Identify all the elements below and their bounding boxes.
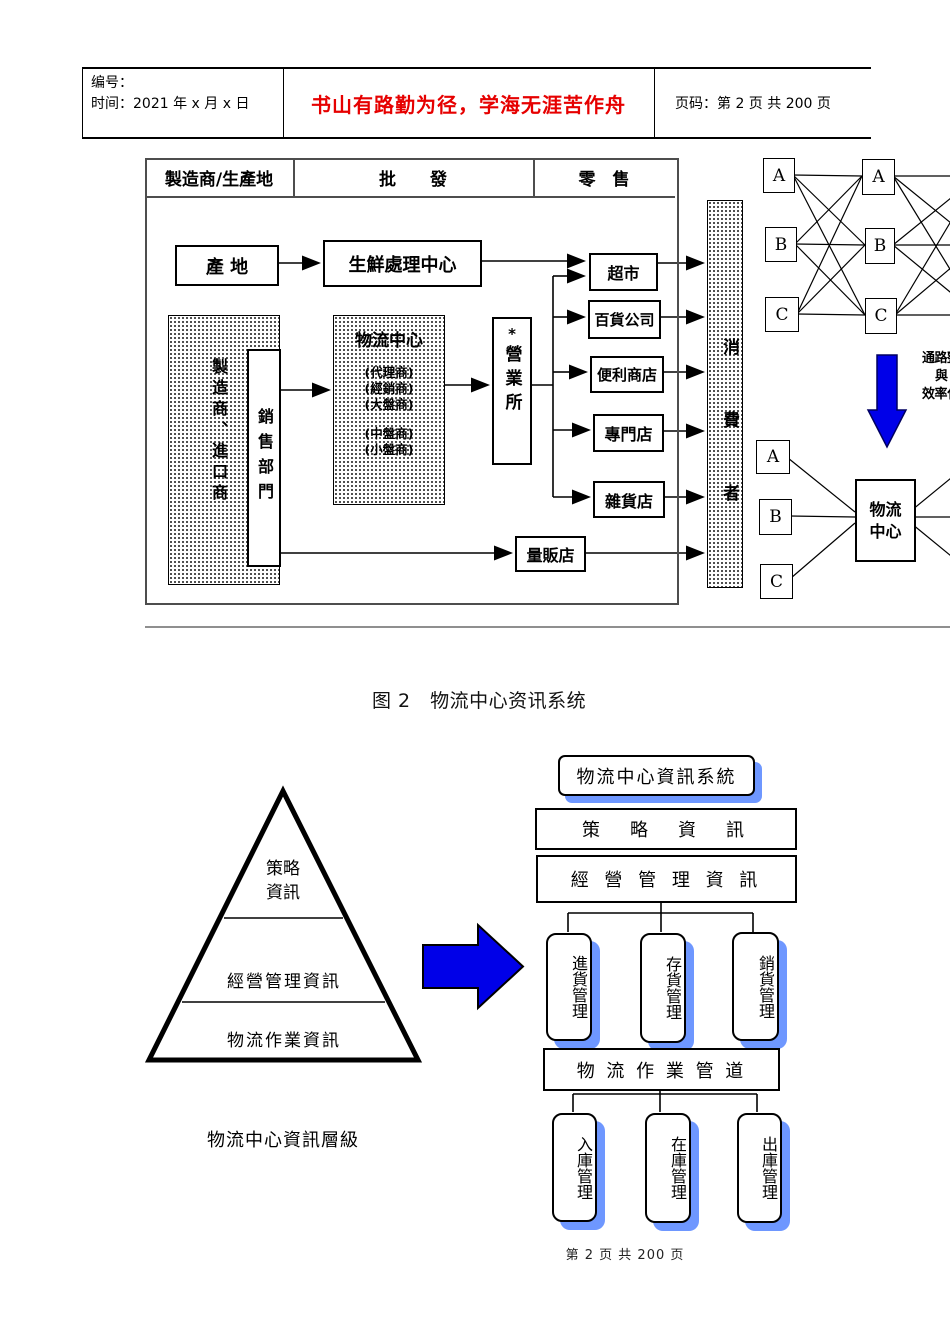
convenience-store-box: 便利商店 xyxy=(590,356,664,393)
node-c-right: C xyxy=(865,298,897,334)
pyramid-shape xyxy=(149,791,418,1060)
pyramid-caption: 物流中心資訊層級 xyxy=(183,1126,383,1152)
storage-management-box: 在庫管理 xyxy=(645,1113,691,1223)
outbound-management-box: 出庫管理 xyxy=(737,1113,782,1223)
doc-number-label: 编号： xyxy=(91,73,249,94)
dc-large-wholesaler-label: (大盤商) xyxy=(334,397,444,413)
grocery-store-box: 雜貨店 xyxy=(593,481,665,518)
sales-department-box: 銷售部門 xyxy=(247,349,281,567)
column-header-wholesale: 批 發 xyxy=(293,158,533,198)
dc-agent-label: (代理商) xyxy=(334,365,444,381)
origin-box: 產 地 xyxy=(175,245,279,286)
footer-page-number: 第 2 页 共 200 页 xyxy=(540,1244,710,1263)
column-header-retail: 零 售 xyxy=(533,158,675,198)
sales-office-box: * 營業所 xyxy=(492,317,532,465)
header-table: 编号： 时间：2021 年 x 月 x 日 书山有路勤为径，学海无涯苦作舟 页码… xyxy=(82,67,871,139)
node-a-left: A xyxy=(763,158,795,193)
pyramid-management-label: 經營管理資訊 xyxy=(184,967,384,992)
column-divider xyxy=(293,158,295,196)
hypermarket-box: 量販店 xyxy=(515,536,586,572)
dc-dealer-label: (經銷商) xyxy=(334,381,444,397)
figure-caption: 图 2 物流中心资讯系统 xyxy=(372,686,586,713)
supermarket-box: 超市 xyxy=(589,253,658,291)
logistics-center-node: 物流 中心 xyxy=(855,479,916,562)
blue-right-arrow xyxy=(423,925,523,1008)
pyramid-operations-label: 物流作業資訊 xyxy=(184,1026,384,1051)
header-meta: 编号： 时间：2021 年 x 月 x 日 xyxy=(91,73,249,115)
management-info-box: 經 營 管 理 資 訊 xyxy=(536,855,797,903)
document-page: 编号： 时间：2021 年 x 月 x 日 书山有路勤为径，学海无涯苦作舟 页码… xyxy=(0,0,950,1344)
node-b-right: B xyxy=(865,228,895,264)
specialty-store-box: 專門店 xyxy=(593,414,664,452)
department-store-box: 百貨公司 xyxy=(588,300,661,339)
node-b-bottom: B xyxy=(759,499,792,535)
header-separator xyxy=(654,69,655,137)
dc-mid-wholesaler-label: (中盤商) xyxy=(334,426,444,442)
consumer-bar: 消費者 xyxy=(707,200,743,588)
blue-down-arrow xyxy=(868,355,906,447)
strategy-info-box: 策 略 資 訊 xyxy=(535,808,797,850)
inbound-management-box: 入庫管理 xyxy=(552,1113,597,1222)
column-header-manufacturer: 製造商/生產地 xyxy=(145,158,293,198)
header-motto: 书山有路勤为径，学海无涯苦作舟 xyxy=(283,69,654,137)
node-c-bottom: C xyxy=(760,564,793,599)
node-a-right: A xyxy=(862,159,895,195)
inventory-management-box: 存貨管理 xyxy=(640,933,686,1043)
node-b-left: B xyxy=(765,227,797,262)
column-divider xyxy=(533,158,535,196)
node-a-bottom: A xyxy=(756,440,790,474)
section-divider xyxy=(145,626,950,628)
purchase-management-box: 進貨管理 xyxy=(546,933,592,1041)
sales-office-label: 營業所 xyxy=(500,345,525,417)
node-c-left: C xyxy=(765,297,799,332)
hierarchy-root-box: 物流中心資訊系統 xyxy=(558,755,755,796)
sales-office-asterisk: * xyxy=(508,325,516,343)
fresh-processing-center-box: 生鮮處理中心 xyxy=(323,240,482,287)
distribution-center-area: 物流中心 (代理商) (經銷商) (大盤商) (中盤商) (小盤商) xyxy=(333,315,445,505)
doc-date-label: 时间：2021 年 x 月 x 日 xyxy=(91,94,249,115)
logistics-pipeline-box: 物 流 作 業 管 道 xyxy=(543,1048,780,1091)
sales-management-box: 銷貨管理 xyxy=(732,932,779,1041)
dc-small-wholesaler-label: (小盤商) xyxy=(334,442,444,458)
pyramid-strategy-label: 策略 資訊 xyxy=(233,857,333,905)
channel-efficiency-note: 通路整 與 效率化 xyxy=(922,350,950,404)
header-page-number: 页码：第 2 页 共 200 页 xyxy=(666,69,880,137)
distribution-center-title: 物流中心 xyxy=(334,326,444,351)
manufacturer-importer-label: 製造商、進口商 xyxy=(206,358,230,538)
